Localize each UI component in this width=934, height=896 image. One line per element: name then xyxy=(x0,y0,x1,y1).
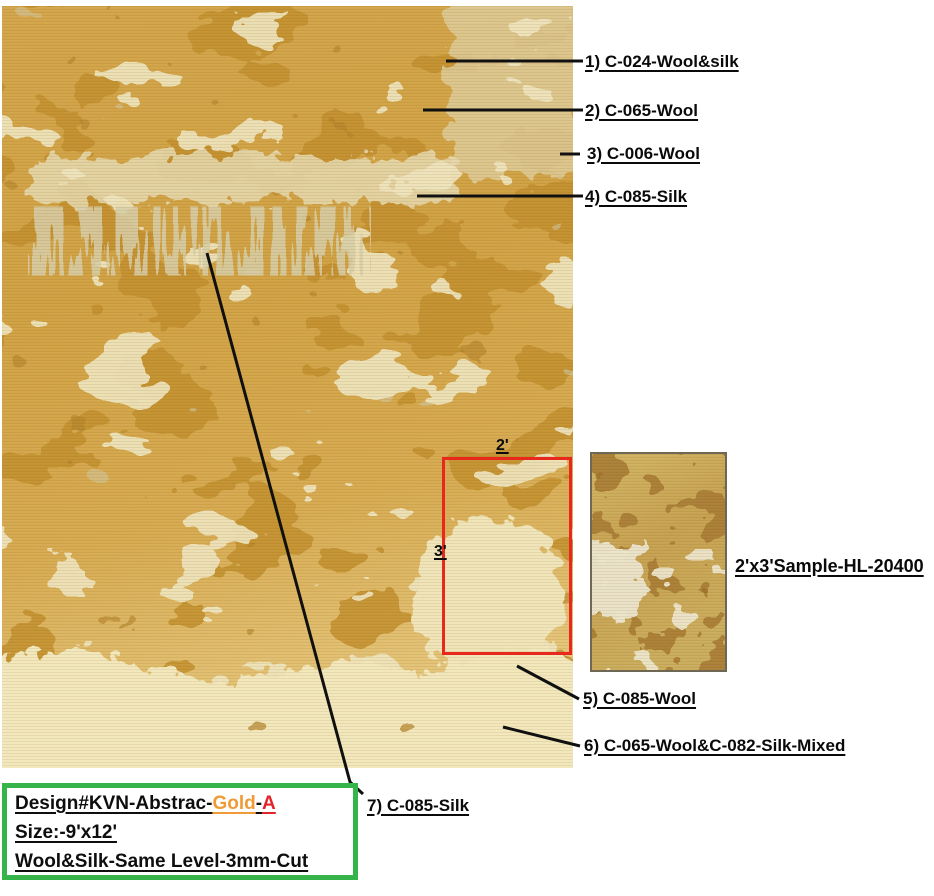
size-line: Size:-9'x12' xyxy=(15,818,345,847)
design-gold-text: Gold xyxy=(212,793,255,814)
design-name-line: Design#KVN-Abstrac-Gold-A xyxy=(15,789,345,818)
design-info-box: Design#KVN-Abstrac-Gold-A Size:-9'x12' W… xyxy=(2,783,358,880)
sample-crop-box xyxy=(442,457,572,655)
callout-label-7: 7) C-085-Silk xyxy=(367,796,469,816)
crop-width-label: 2' xyxy=(496,437,509,455)
sample-size-label: 2'x3'Sample-HL-20400 xyxy=(735,556,924,577)
callout-label-3: 3) C-006-Wool xyxy=(587,144,700,164)
crop-height-label: 3' xyxy=(434,543,447,561)
callout-label-2: 2) C-065-Wool xyxy=(585,101,698,121)
design-prefix-text: Design#KVN-Abstrac- xyxy=(15,793,212,814)
sample-rug-texture xyxy=(592,454,725,670)
callout-label-4: 4) C-085-Silk xyxy=(585,187,687,207)
material-line: Wool&Silk-Same Level-3mm-Cut xyxy=(15,847,345,876)
sample-rug-photo xyxy=(590,452,727,672)
design-variant-text: A xyxy=(262,793,276,814)
callout-label-5: 5) C-085-Wool xyxy=(583,689,696,709)
callout-label-1: 1) C-024-Wool&silk xyxy=(585,52,739,72)
callout-label-6: 6) C-065-Wool&C-082-Silk-Mixed xyxy=(584,736,845,756)
rug-spec-sheet: 1) C-024-Wool&silk 2) C-065-Wool 3) C-00… xyxy=(0,0,934,896)
